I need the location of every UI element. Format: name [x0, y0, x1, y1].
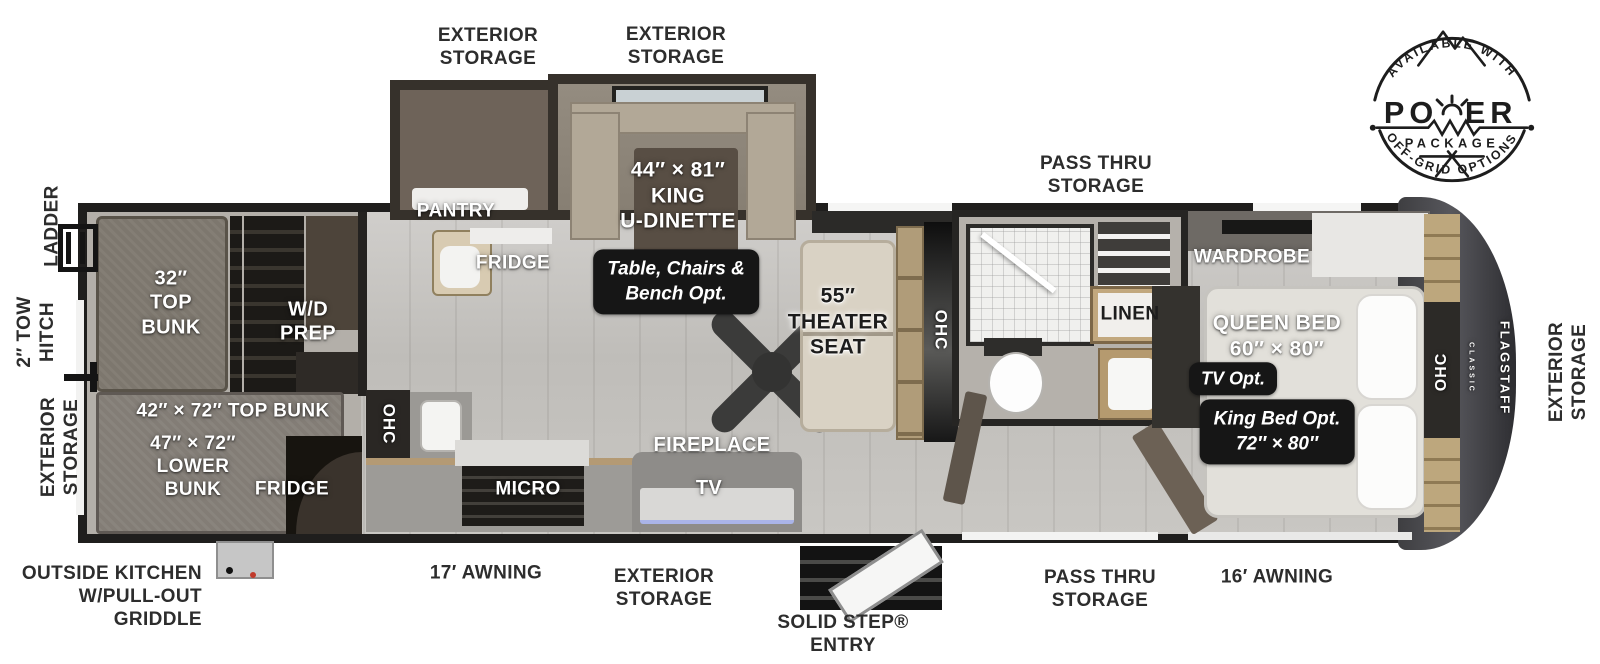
- brand-name: FLAGSTAFF: [1495, 321, 1515, 415]
- pillow-bottom: [1356, 404, 1418, 510]
- label-wardrobe: WARDROBE: [1194, 245, 1310, 268]
- label-micro: MICRO: [495, 477, 560, 500]
- outside-kitchen-valve: [250, 572, 256, 578]
- window-top-bedroom: [1253, 203, 1361, 211]
- badge-power-left: PO: [1384, 95, 1438, 130]
- dinette-bench-right: [746, 112, 796, 240]
- window-top-living: [828, 203, 952, 211]
- fridge-counter-strip: [470, 228, 552, 244]
- fridge-door: [440, 246, 480, 288]
- brand-flagstaff: FLAGSTAFF CLASSIC: [1446, 321, 1535, 415]
- label-awning-16: 16′ AWNING: [1221, 565, 1333, 588]
- floorplan-canvas: AVAILABLE WITH OFF-GRID OPTIONS PO ER PA…: [0, 0, 1600, 664]
- sun-icon: [1443, 105, 1461, 114]
- pillow-top: [1356, 294, 1418, 400]
- label-exterior-storage-bottom: EXTERIOR STORAGE: [614, 565, 714, 611]
- theater-crates: [896, 226, 924, 440]
- shower: [966, 224, 1094, 346]
- label-king-u-dinette: 44″ × 81″ KING U-DINETTE: [620, 158, 736, 235]
- outside-kitchen-box: [216, 541, 274, 579]
- label-pantry: PANTRY: [417, 199, 495, 222]
- label-exterior-storage-top-left: EXTERIOR STORAGE: [438, 24, 538, 70]
- headboard-cabinet-top: [1424, 214, 1460, 302]
- label-tow-hitch: 2″ TOW HITCH: [13, 296, 59, 367]
- label-exterior-storage-front: EXTERIOR STORAGE: [1545, 322, 1591, 422]
- label-tv: TV: [696, 476, 722, 500]
- label-solid-step-entry: SOLID STEP® ENTRY: [777, 611, 908, 657]
- dinette-bench-left: [570, 112, 620, 240]
- badge-table-chairs-option: Table, Chairs & Bench Opt.: [593, 249, 759, 314]
- divider-dot-right: [1528, 125, 1534, 131]
- label-lower-bunk-47: 47″ × 72″ LOWER BUNK: [150, 432, 236, 502]
- vanity-sink: [1108, 358, 1154, 410]
- ceiling-fan-hub: [752, 352, 792, 392]
- badge-tv-option: TV Opt.: [1189, 362, 1277, 395]
- label-fireplace: FIREPLACE: [654, 433, 771, 457]
- badge-top-arc-text: AVAILABLE WITH: [1384, 36, 1520, 80]
- label-top-bunk-32: 32″ TOP BUNK: [141, 266, 200, 339]
- wd-prep-appliances: [296, 352, 358, 394]
- outside-kitchen-knob: [226, 567, 233, 574]
- badge-king-bed-option: King Bed Opt. 72″ × 80″: [1200, 399, 1355, 464]
- bunk-ladder: [230, 216, 242, 392]
- range-hood: [455, 440, 589, 466]
- label-pass-thru-bottom: PASS THRU STORAGE: [1044, 566, 1156, 612]
- label-pass-thru-top: PASS THRU STORAGE: [1040, 152, 1152, 198]
- label-theater-seat: 55″ THEATER SEAT: [788, 284, 888, 361]
- toilet-bowl: [988, 352, 1044, 414]
- svg-text:AVAILABLE WITH: AVAILABLE WITH: [1384, 36, 1520, 80]
- label-exterior-storage-rear: EXTERIOR STORAGE: [37, 397, 83, 497]
- label-queen-bed: QUEEN BED 60″ × 80″: [1213, 310, 1341, 361]
- label-outside-kitchen: OUTSIDE KITCHEN W/PULL-OUT GRIDDLE: [0, 562, 202, 632]
- window-bottom-passthru: [962, 532, 1158, 540]
- tow-hitch-post: [90, 362, 97, 392]
- window-bottom-bedroom: [1188, 532, 1412, 540]
- label-ladder: LADDER: [40, 185, 63, 267]
- label-top-bunk-42: 42″ × 72″ TOP BUNK: [136, 399, 329, 422]
- label-ohc-theater: OHC: [930, 310, 951, 351]
- label-exterior-storage-top-right: EXTERIOR STORAGE: [626, 23, 726, 69]
- divider-dot-left: [1370, 125, 1376, 131]
- label-fridge: FRIDGE: [476, 251, 550, 274]
- power-package-badge: AVAILABLE WITH OFF-GRID OPTIONS PO ER PA…: [1352, 2, 1552, 198]
- bunkroom-wall: [358, 212, 367, 396]
- wardrobe-shelf: [1312, 213, 1428, 277]
- ladder-rungs: [66, 232, 90, 264]
- brand-series: CLASSIC: [1465, 321, 1476, 415]
- badge-package-text: PACKAGE: [1405, 136, 1500, 151]
- label-awning-17: 17′ AWNING: [430, 561, 542, 584]
- label-linen: LINEN: [1101, 302, 1160, 325]
- label-wd-prep: W/D PREP: [280, 298, 336, 347]
- label-bunk-fridge: FRIDGE: [255, 477, 329, 500]
- badge-power-right: ER: [1465, 95, 1518, 130]
- label-ohc-kitchen: OHC: [378, 404, 399, 445]
- headboard-cabinet-bottom: [1424, 438, 1460, 532]
